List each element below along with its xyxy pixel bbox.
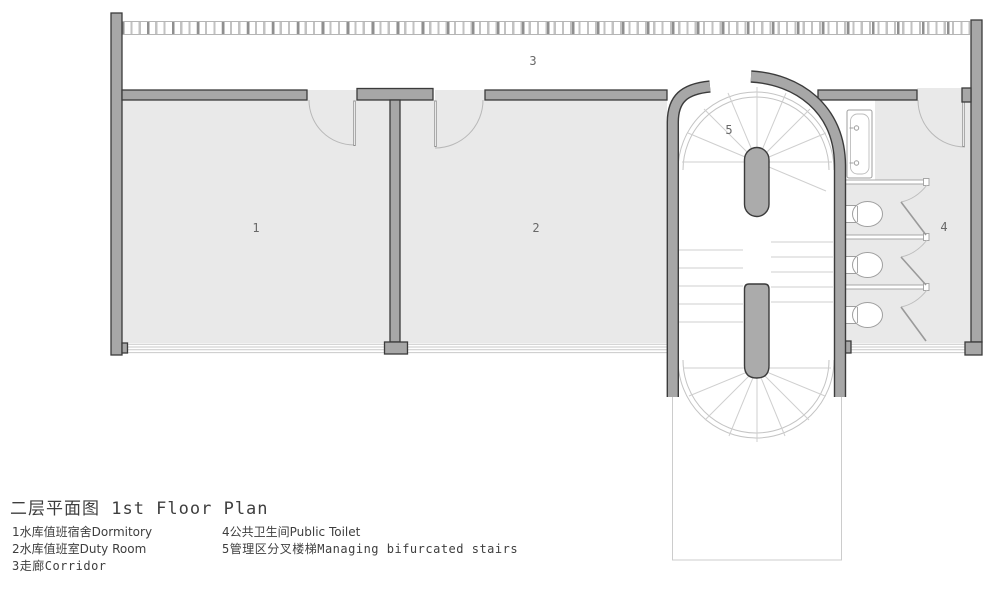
toilet-icons: [845, 202, 883, 328]
legend-column-1: 1水库值班宿舍Dormitory 2水库值班室Duty Room 3走廊Corr…: [12, 524, 152, 575]
legend-item-stairs: 5管理区分叉楼梯Managing bifurcated stairs: [222, 541, 518, 558]
toilet-icon: [845, 202, 883, 227]
room-label-5: 5: [725, 124, 732, 136]
page-title: 二层平面图 1st Floor Plan: [10, 494, 269, 519]
room-label-1: 1: [252, 222, 259, 234]
sink-counter: [847, 110, 872, 178]
floor-plan-page: 1 2 3 4 5 二层平面图 1st Floor Plan 1水库值班宿舍Do…: [0, 0, 1000, 592]
stair-capsule-columns: [745, 148, 770, 379]
room-label-4: 4: [940, 221, 947, 233]
legend-item-public-toilet: 4公共卫生间Public Toilet: [222, 524, 518, 541]
toilet-icon: [845, 303, 883, 328]
room-label-2: 2: [532, 222, 539, 234]
legend-item-duty-room: 2水库值班室Duty Room: [12, 541, 152, 558]
legend-column-2: 4公共卫生间Public Toilet 5管理区分叉楼梯Managing bif…: [222, 524, 518, 558]
room-label-3: 3: [529, 55, 536, 67]
legend-item-corridor: 3走廊Corridor: [12, 558, 152, 575]
legend-item-dormitory: 1水库值班宿舍Dormitory: [12, 524, 152, 541]
toilet-icon: [845, 253, 883, 278]
